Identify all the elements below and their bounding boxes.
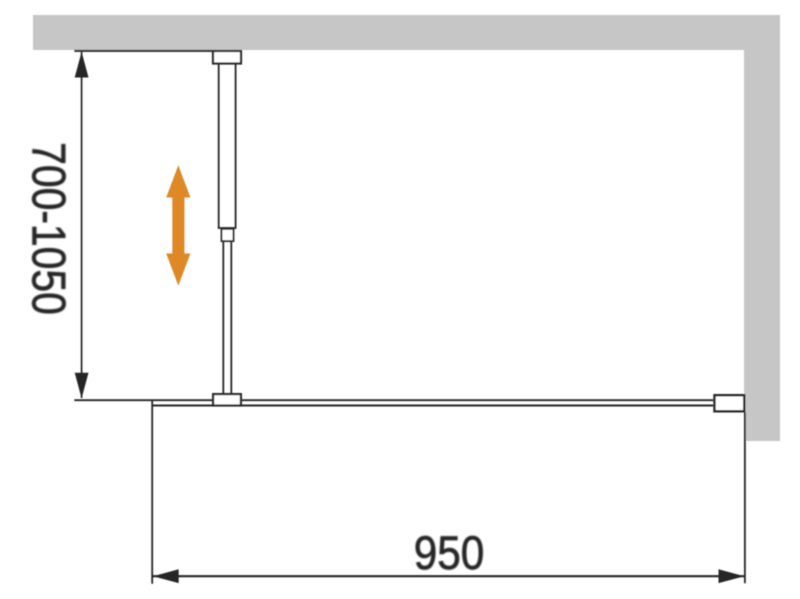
svg-text:700-1050: 700-1050 [22,142,74,315]
svg-text:950: 950 [414,528,485,580]
